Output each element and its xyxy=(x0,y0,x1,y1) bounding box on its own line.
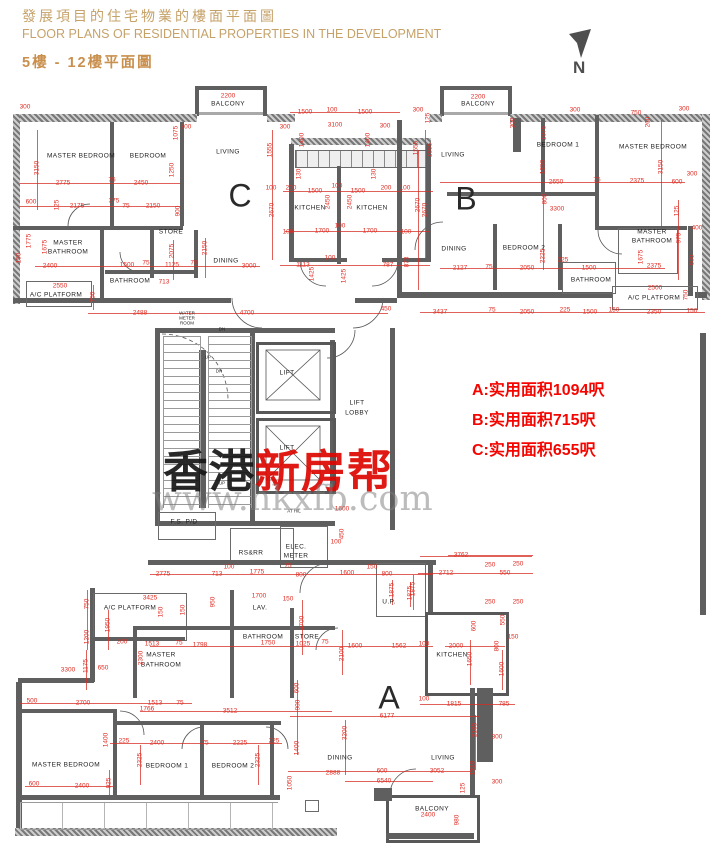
room-label: BATHROOM xyxy=(571,277,611,284)
dimension-value: 1766 xyxy=(140,706,154,713)
dimension-value: 1815 xyxy=(447,701,461,708)
dimension-value: 300 xyxy=(413,107,424,114)
wall-segment xyxy=(267,114,295,122)
room-label: U.P. xyxy=(382,599,395,606)
dimension-value: 1050 xyxy=(287,776,294,790)
dimension-value: 2775 xyxy=(156,571,170,578)
dimension-value: 2670 xyxy=(269,203,276,217)
dimension-value: 1400 xyxy=(294,741,301,755)
dimension-value: 1675 xyxy=(42,240,49,254)
wall-segment xyxy=(18,709,116,713)
dimension-value: 200 xyxy=(381,185,392,192)
dimension-value: 1500 xyxy=(583,309,597,316)
dimension-value: 75 xyxy=(122,203,129,210)
saleable-area-annotations: A:实用面积1094呎 B:实用面积715呎 C:实用面积655呎 xyxy=(472,376,604,466)
dimension-value: 125 xyxy=(674,206,681,217)
dimension-value: 100 xyxy=(327,107,338,114)
dimension-value: 1675 xyxy=(638,250,645,264)
dimension-value: 2450 xyxy=(134,180,148,187)
dimension-value: 1775 xyxy=(250,569,264,576)
wall-segment xyxy=(263,86,267,116)
dimension-value: 300 xyxy=(492,779,503,786)
floor-plan-page: 發展項目的住宅物業的樓面平面圖 FLOOR PLANS OF RESIDENTI… xyxy=(0,0,720,847)
dimension-value: 150 xyxy=(508,634,519,641)
dimension-value: 3000 xyxy=(242,263,256,270)
wall-segment xyxy=(200,725,204,799)
room-label: METER xyxy=(284,553,309,560)
wall-segment xyxy=(100,230,104,300)
dimension-value: 2500 xyxy=(648,285,662,292)
room-label: A/C PLATFORM xyxy=(30,292,82,299)
dimension-value: 1400 xyxy=(103,733,110,747)
watermark-url: www.hkxfb.com xyxy=(152,479,433,519)
dimension-value: 2488 xyxy=(133,310,147,317)
room-label: DINING xyxy=(441,246,466,253)
dimension-value: 75 xyxy=(485,264,492,271)
dimension-value: 1075 xyxy=(541,126,548,140)
wall-segment xyxy=(113,721,281,725)
dimension-value: 800 xyxy=(542,194,549,205)
dimension-value: 75 xyxy=(175,640,182,647)
wall-segment xyxy=(13,114,197,122)
dimension-value: 650 xyxy=(98,665,109,672)
dimension-value: 1425 xyxy=(309,267,316,281)
wall-segment xyxy=(397,120,402,298)
dimension-value: 800 xyxy=(296,572,307,579)
wall-segment xyxy=(291,138,431,145)
dimension-value: 75 xyxy=(108,177,115,184)
dimension-value: 1500 xyxy=(298,109,312,116)
dimension-value: 1125 xyxy=(165,262,179,269)
dimension-value: 2450 xyxy=(347,195,354,209)
dimension-value: 975 xyxy=(676,233,683,244)
wall-segment xyxy=(440,86,512,90)
dimension-value: 2700 xyxy=(76,700,90,707)
dimension-value: 500 xyxy=(27,698,38,705)
wall-segment xyxy=(133,626,137,698)
room-label: MASTER BEDROOM xyxy=(619,144,687,151)
dimension-value: 1775 xyxy=(26,234,33,248)
wall-segment xyxy=(199,112,263,115)
dimension-value: 1950 xyxy=(105,618,112,632)
dimension-value: 2000 xyxy=(449,643,463,650)
dimension-value: 100 xyxy=(401,229,412,236)
wall-segment xyxy=(230,590,234,698)
dimension-value: 1310 xyxy=(470,761,477,775)
dimension-value: 2100 xyxy=(339,647,346,661)
room-label: BEDROOM 1 xyxy=(146,763,189,770)
dimension-value: 75 xyxy=(593,177,600,184)
dimension-value: 1500 xyxy=(308,188,322,195)
dimension-value: 1700 xyxy=(252,593,266,600)
dimension-value: 600 xyxy=(377,768,388,775)
dimension-value: 100 xyxy=(332,183,343,190)
dimension-value: 450 xyxy=(381,306,392,313)
dimension-value: 550 xyxy=(500,615,507,626)
wall-segment xyxy=(203,298,231,303)
dimension-value: 1600 xyxy=(340,570,354,577)
dimension-value: 75 xyxy=(201,740,208,747)
dimension-value: 2165 xyxy=(472,723,479,737)
dimension-value: 1425 xyxy=(341,269,348,283)
wall-segment xyxy=(18,678,94,683)
dimension-value: 75 xyxy=(142,260,149,267)
dimension-value: 150 xyxy=(180,605,187,616)
wall-segment xyxy=(155,328,335,333)
dimension-value: 250 xyxy=(513,561,524,568)
room-label: LIFT xyxy=(280,370,295,377)
dimension-value: 100 xyxy=(419,696,430,703)
dimension-value: 2325 xyxy=(255,753,262,767)
dimension-value: 980 xyxy=(454,815,461,826)
room-label: MASTER BEDROOM xyxy=(32,762,100,769)
dimension-value: 2400 xyxy=(421,812,435,819)
dimension-value: 2775 xyxy=(56,180,70,187)
dimension-line xyxy=(418,573,533,574)
room-label: A/C PLATFORM xyxy=(628,295,680,302)
dimension-value: 100 xyxy=(419,641,430,648)
room-label: LIVING xyxy=(431,755,455,762)
dimension-value: 2050 xyxy=(520,265,534,272)
dimension-value: 2400 xyxy=(43,263,57,270)
dimension-value: 1555 xyxy=(413,141,420,155)
room-label: KITCHEN xyxy=(356,205,387,212)
room-label: LIVING xyxy=(441,152,465,159)
dimension-value: 2050 xyxy=(520,309,534,316)
room-label: BATHROOM xyxy=(110,278,150,285)
room-label: BALCONY xyxy=(461,101,495,108)
dimension-value: 2225 xyxy=(540,249,547,263)
room-label: BATHROOM xyxy=(632,238,672,245)
dimension-value: 1875 xyxy=(389,583,396,597)
dimension-value: 750 xyxy=(90,292,97,303)
dimension-value: 1750 xyxy=(261,640,275,647)
wall-segment xyxy=(430,114,442,122)
dimension-value: 1500 xyxy=(358,109,372,116)
dimension-value: 2075 xyxy=(169,244,176,258)
dimension-value: 600 xyxy=(471,621,478,632)
dimension-value: 1500 xyxy=(582,265,596,272)
wall-segment xyxy=(270,725,274,799)
dimension-value: 2700 xyxy=(299,616,306,630)
dimension-line xyxy=(110,743,282,744)
dimension-value: 2200 xyxy=(471,94,485,101)
room-label: DINING xyxy=(213,258,238,265)
wall-segment xyxy=(13,114,20,304)
dimension-value: 3425 xyxy=(143,595,157,602)
dimension-value: 75 xyxy=(488,307,495,314)
dimension-value: 100 xyxy=(400,185,411,192)
dimension-value: 1875 xyxy=(410,582,417,596)
dimension-value: 2200 xyxy=(221,93,235,100)
dimension-value: 3150 xyxy=(34,161,41,175)
dimension-value: 300 xyxy=(687,171,698,178)
dimension-value: 300 xyxy=(20,104,31,111)
wall-segment xyxy=(256,342,336,414)
dimension-value: 600 xyxy=(294,683,301,694)
dimension-value: 750 xyxy=(683,290,690,301)
room-label: MASTER xyxy=(53,240,83,247)
dimension-value: 1700 xyxy=(363,228,377,235)
dimension-value: 2325 xyxy=(137,753,144,767)
room-label: BATHROOM xyxy=(141,662,181,669)
dimension-value: 1562 xyxy=(392,643,406,650)
dimension-value: 2400 xyxy=(75,783,89,790)
wall-segment xyxy=(20,802,278,830)
dimension-value: 1400 xyxy=(299,133,306,147)
dimension-value: 250 xyxy=(485,562,496,569)
dimension-value: 150 xyxy=(609,307,620,314)
dimension-value: 125 xyxy=(460,783,467,794)
dimension-value: 2300 xyxy=(138,651,145,665)
wall-segment xyxy=(508,86,512,116)
room-label: STORE xyxy=(159,229,183,236)
dimension-value: 75 xyxy=(321,639,328,646)
dimension-value: 1500 xyxy=(351,188,365,195)
wall-segment xyxy=(444,112,508,115)
dimension-value: 100 xyxy=(283,229,294,236)
dimension-value: 950 xyxy=(210,597,217,608)
dimension-value: 600 xyxy=(26,199,37,206)
dimension-value: 300 xyxy=(679,106,690,113)
wall-segment xyxy=(386,833,474,839)
dimension-value: 600 xyxy=(672,179,683,186)
dimension-value: 550 xyxy=(500,570,511,577)
dimension-value: 2375 xyxy=(630,178,644,185)
dimension-value: 900 xyxy=(295,700,302,711)
room-label: BEDROOM xyxy=(130,153,166,160)
dimension-value: 3300 xyxy=(61,667,75,674)
dimension-value: 800 xyxy=(494,641,501,652)
wall-segment xyxy=(477,688,493,762)
wall-segment xyxy=(702,114,710,300)
dimension-value: 2670 xyxy=(415,198,422,212)
dimension-value: 2175 xyxy=(70,203,84,210)
dimension-value: 2450 xyxy=(325,195,332,209)
room-label: MASTER BEDROOM xyxy=(47,153,115,160)
dimension-value: 75 xyxy=(284,563,291,570)
dimension-value: 300 xyxy=(280,124,291,131)
room-label: BALCONY xyxy=(211,101,245,108)
wall-segment xyxy=(355,298,397,303)
dimension-value: 1075 xyxy=(173,126,180,140)
dimension-value: 225 xyxy=(269,738,280,745)
room-label: LAV. xyxy=(253,605,268,612)
dimension-value: 200 xyxy=(286,185,297,192)
room-label: BATHROOM xyxy=(48,249,88,256)
wall-segment xyxy=(595,115,599,227)
area-unit-a: A:实用面积1094呎 xyxy=(472,376,604,406)
wall-segment xyxy=(13,226,183,230)
dimension-value: 2400 xyxy=(150,740,164,747)
dimension-value: 100 xyxy=(224,564,235,571)
room-label: LOBBY xyxy=(345,410,369,417)
dimension-value: 2150 xyxy=(202,241,209,255)
dimension-value: 1175 xyxy=(83,659,90,673)
wall-segment xyxy=(305,800,319,812)
dimension-value: 3100 xyxy=(328,122,342,129)
dimension-value: 1555 xyxy=(427,143,434,157)
dimension-value: 6540 xyxy=(377,778,391,785)
dimension-line xyxy=(440,268,665,269)
room-label: LIVING xyxy=(216,149,240,156)
dimension-value: 1798 xyxy=(193,642,207,649)
dimension-value: 2670 xyxy=(422,203,429,217)
dimension-value: 75 xyxy=(190,260,197,267)
dimension-value: 300 xyxy=(181,124,192,131)
room-label: F.S. P/D xyxy=(170,519,197,526)
dimension-value: 1650 xyxy=(467,652,474,666)
dimension-value: 225 xyxy=(560,307,571,314)
area-unit-b: B:实用面积715呎 xyxy=(472,406,604,436)
unit-letter: C xyxy=(228,178,251,215)
door-swings-and-lifts xyxy=(0,0,720,847)
room-label: DN xyxy=(216,369,223,374)
dimension-value: 2650 xyxy=(549,179,563,186)
wall-segment xyxy=(493,224,497,290)
wall-segment xyxy=(110,122,114,226)
dimension-value: 3300 xyxy=(550,206,564,213)
dimension-value: 4700 xyxy=(240,310,254,317)
dimension-value: 150 xyxy=(687,308,698,315)
dimension-value: 2375 xyxy=(647,263,661,270)
dimension-value: 300 xyxy=(510,118,517,129)
dimension-value: 125 xyxy=(425,113,432,124)
dimension-value: 150 xyxy=(158,607,165,618)
dimension-value: 713 xyxy=(212,571,223,578)
dimension-value: 100 xyxy=(335,223,346,230)
dimension-value: 375 xyxy=(109,198,120,205)
dimension-value: 2127 xyxy=(453,265,467,272)
dimension-line xyxy=(20,183,180,184)
dimension-value: 3052 xyxy=(430,768,444,775)
dimension-value: 1600 xyxy=(499,662,506,676)
unit-letter: A xyxy=(378,680,399,717)
dimension-value: 785 xyxy=(499,701,510,708)
room-label: ELEC. xyxy=(286,544,307,551)
dimension-value: 3512 xyxy=(223,708,237,715)
dimension-value: 1400 xyxy=(365,133,372,147)
dimension-value: 200 xyxy=(117,639,128,646)
dimension-value: 130 xyxy=(296,169,303,180)
dimension-value: 75 xyxy=(176,700,183,707)
wall-segment xyxy=(374,788,392,801)
wall-segment xyxy=(337,166,341,264)
dimension-value: 787 xyxy=(383,262,394,269)
room-label: MASTER xyxy=(637,229,667,236)
dimension-value: 300 xyxy=(570,107,581,114)
dimension-value: 250 xyxy=(513,599,524,606)
room-label: RS&RR xyxy=(239,550,264,557)
dimension-value: 1500 xyxy=(120,262,134,269)
dimension-line xyxy=(661,120,662,230)
dimension-value: 1200 xyxy=(84,630,91,644)
room-label: ROOM xyxy=(180,321,194,326)
wall-segment xyxy=(105,270,195,274)
wall-segment xyxy=(289,144,294,262)
dimension-value: 2225 xyxy=(233,740,247,747)
dimension-value: 3200 xyxy=(342,726,349,740)
dimension-line xyxy=(20,703,192,704)
room-label: A/C PLATFORM xyxy=(104,605,156,612)
dimension-value: 3150 xyxy=(658,160,665,174)
dimension-value: 1700 xyxy=(315,228,329,235)
room-label: DN xyxy=(219,327,226,332)
dimension-value: 2712 xyxy=(439,570,453,577)
dimension-value: 125 xyxy=(54,200,61,211)
dimension-value: 1555 xyxy=(267,143,274,157)
dimension-value: 100 xyxy=(266,185,277,192)
dimension-value: 1025 xyxy=(296,641,310,648)
dimension-value: 1250 xyxy=(540,160,547,174)
floor-plan-canvas: MASTER BEDROOMBEDROOMLIVINGBALCONYKITCHE… xyxy=(0,0,720,847)
wall-segment xyxy=(510,114,706,122)
dimension-value: 2550 xyxy=(53,283,67,290)
unit-letter: B xyxy=(455,181,476,218)
room-label: KITCHEN xyxy=(436,652,467,659)
wall-segment xyxy=(93,637,185,641)
wall-segment xyxy=(295,150,429,168)
dimension-value: 2888 xyxy=(326,770,340,777)
dimension-value: 100 xyxy=(331,539,342,546)
room-label: STORE xyxy=(295,634,319,641)
room-label: LIFT xyxy=(350,400,365,407)
dimension-value: 100 xyxy=(325,255,336,262)
dimension-value: 3437 xyxy=(433,309,447,316)
dimension-value: 500 xyxy=(689,255,696,266)
dimension-line xyxy=(420,556,532,557)
dimension-value: 2350 xyxy=(647,309,661,316)
dimension-value: 130 xyxy=(371,169,378,180)
dimension-value: 3762 xyxy=(454,552,468,559)
dimension-value: 150 xyxy=(16,253,23,264)
room-label: DINING xyxy=(327,755,352,762)
dimension-value: 260 xyxy=(645,117,652,128)
dimension-value: 225 xyxy=(558,257,569,264)
wall-segment xyxy=(18,795,280,800)
dimension-value: 2150 xyxy=(146,203,160,210)
dimension-value: 300 xyxy=(380,123,391,130)
room-label: KITCHEN xyxy=(294,205,325,212)
room-label: UP xyxy=(205,355,211,360)
area-unit-c: C:实用面积655呎 xyxy=(472,436,604,466)
dimension-value: 300 xyxy=(492,734,503,741)
dimension-value: 225 xyxy=(119,738,130,745)
dimension-value: 925 xyxy=(106,778,113,789)
dimension-value: 713 xyxy=(159,279,170,286)
dimension-value: 1600 xyxy=(348,643,362,650)
dimension-value: 750 xyxy=(84,599,91,610)
room-label: BEDROOM 2 xyxy=(212,763,255,770)
room-label: MASTER xyxy=(146,652,176,659)
dimension-value: 400 xyxy=(692,225,703,232)
wall-segment xyxy=(700,333,706,615)
dimension-value: 900 xyxy=(175,206,182,217)
wall-segment xyxy=(428,560,433,615)
room-label: BEDROOM 1 xyxy=(537,142,580,149)
dimension-value: 873 xyxy=(404,257,411,268)
dimension-value: 600 xyxy=(29,781,40,788)
dimension-value: 150 xyxy=(367,564,378,571)
dimension-value: 750 xyxy=(631,110,642,117)
dimension-value: 250 xyxy=(485,599,496,606)
dimension-value: 800 xyxy=(382,571,393,578)
dimension-value: 1250 xyxy=(169,163,176,177)
wall-segment xyxy=(195,86,267,90)
dimension-value: 1513 xyxy=(145,641,159,648)
dimension-value: 150 xyxy=(283,596,294,603)
dimension-line xyxy=(418,150,419,290)
